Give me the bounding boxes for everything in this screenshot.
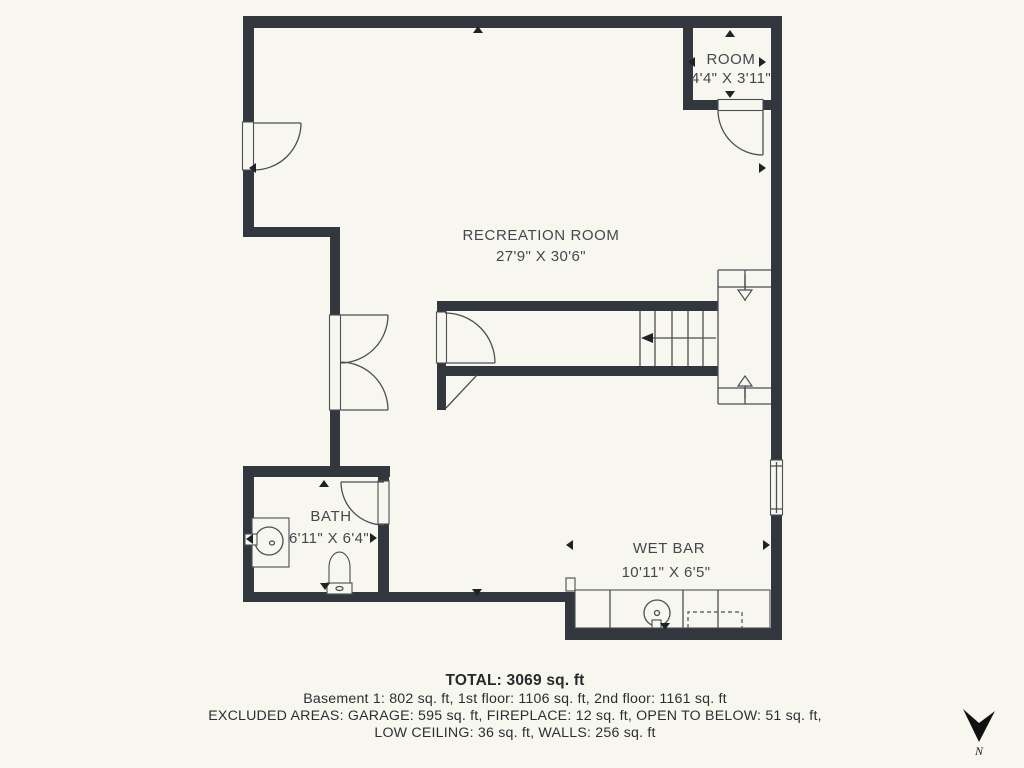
door-frame-bath xyxy=(378,481,389,524)
door-frame-room xyxy=(718,100,763,111)
staircase xyxy=(446,270,771,408)
wet-bar-label: WET BAR xyxy=(633,540,705,557)
north-label: N xyxy=(974,744,984,758)
room-dims: 4'4" X 3'11" xyxy=(691,70,771,87)
bath-dims: 6'11" X 6'4" xyxy=(289,530,369,547)
stair-down-arrow xyxy=(738,290,752,300)
door-swing-room xyxy=(718,110,763,155)
recreation-room-label: RECREATION ROOM xyxy=(462,227,619,244)
room-label: ROOM xyxy=(706,51,755,68)
north-arrow-icon xyxy=(963,709,995,742)
window-right-wall xyxy=(771,460,783,515)
door-swing-hall xyxy=(445,313,495,363)
toilet-bowl xyxy=(329,552,350,583)
door-frame-double-door xyxy=(330,315,341,410)
door-swing-upper-left xyxy=(254,123,301,170)
door-swing-double-door xyxy=(340,315,388,410)
floor-plan-svg: RECREATION ROOM 27'9" X 30'6" ROOM 4'4" … xyxy=(0,0,1024,768)
door-frame-hall xyxy=(437,312,447,363)
excluded-areas-text-2: LOW CEILING: 36 sq. ft, WALLS: 256 sq. f… xyxy=(374,725,655,741)
under-stair-diagonal xyxy=(446,375,477,408)
counter-end-cap xyxy=(566,578,575,591)
stair-direction-arrowhead xyxy=(641,333,653,343)
bar-sink-faucet xyxy=(652,620,661,628)
area-summary: TOTAL: 3069 sq. ft Basement 1: 802 sq. f… xyxy=(208,672,822,741)
bath-label: BATH xyxy=(310,508,351,525)
stair-up-arrow xyxy=(738,376,752,386)
floor-plan-page: RECREATION ROOM 27'9" X 30'6" ROOM 4'4" … xyxy=(0,0,1024,768)
total-area-text: TOTAL: 3069 sq. ft xyxy=(445,672,584,689)
recreation-room-dims: 27'9" X 30'6" xyxy=(496,248,586,265)
door-frame-upper-left xyxy=(243,122,254,170)
floor-areas-text: Basement 1: 802 sq. ft, 1st floor: 1106 … xyxy=(303,691,727,707)
wet-bar-counter xyxy=(566,578,770,628)
counter-outline xyxy=(575,590,770,628)
toilet-tank xyxy=(327,583,352,594)
wet-bar-dims: 10'11" X 6'5" xyxy=(622,564,711,581)
door-openings xyxy=(243,100,764,525)
compass: N xyxy=(963,709,995,758)
excluded-areas-text-1: EXCLUDED AREAS: GARAGE: 595 sq. ft, FIRE… xyxy=(208,708,822,724)
